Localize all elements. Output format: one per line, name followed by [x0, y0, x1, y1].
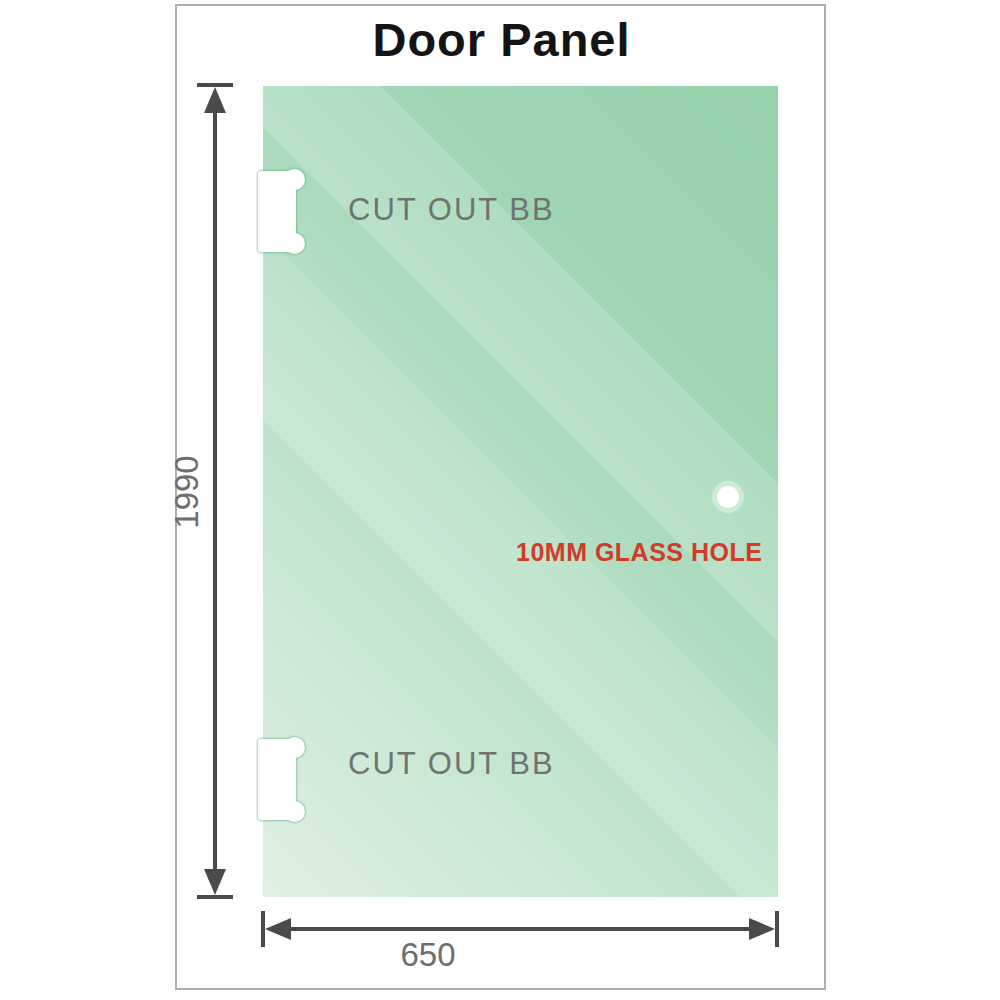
glass-hole: [717, 486, 739, 508]
door-panel-diagram: Door Panel CUT OUT BB CUT OUT BB 10MM GL…: [0, 0, 1000, 1000]
hinge-cutout-top: [258, 169, 308, 254]
cutout-drill-hole-bottom: [284, 233, 305, 254]
height-dimension-value: 1990: [167, 427, 207, 557]
page-title: Door Panel: [175, 12, 828, 67]
glass-hole-label: 10MM GLASS HOLE: [516, 538, 762, 567]
glass-panel: CUT OUT BB CUT OUT BB 10MM GLASS HOLE: [263, 86, 778, 897]
width-dimension-value: 650: [378, 936, 478, 974]
cutout-bottom-label: CUT OUT BB: [348, 746, 555, 782]
hinge-cutout-bottom: [258, 737, 308, 822]
cutout-drill-hole-top: [284, 737, 305, 758]
cutout-drill-hole-top: [284, 169, 305, 190]
cutout-top-label: CUT OUT BB: [348, 192, 555, 228]
cutout-drill-hole-bottom: [284, 801, 305, 822]
